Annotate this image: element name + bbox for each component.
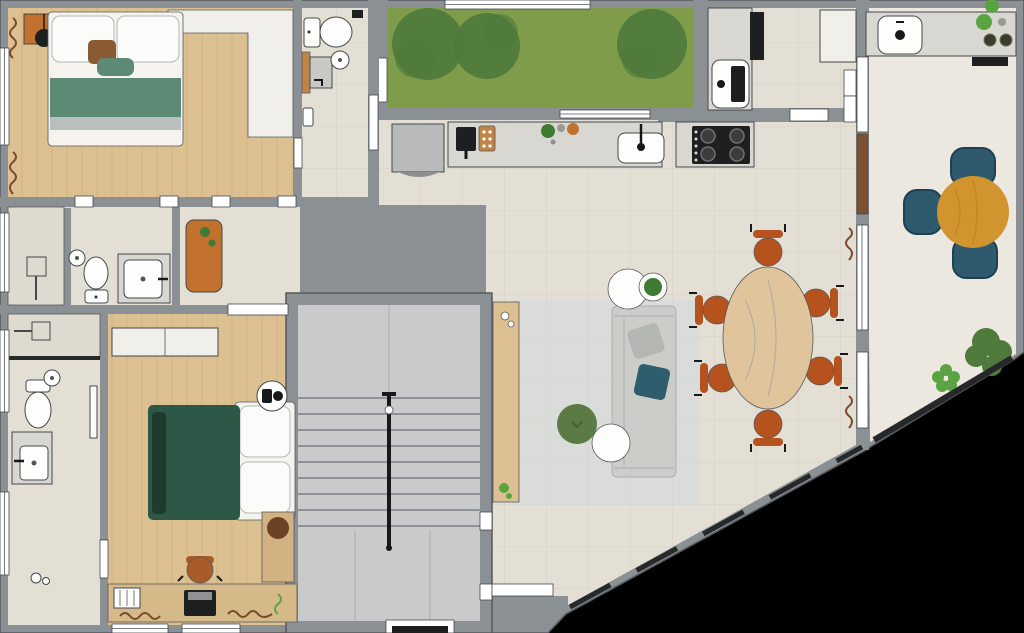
bathroom1-door[interactable] xyxy=(369,95,378,150)
burner xyxy=(701,147,715,161)
laptop-keys xyxy=(188,592,212,600)
gas-hob xyxy=(692,126,750,164)
round-table xyxy=(937,176,1009,248)
staircase xyxy=(286,293,492,633)
flush-button xyxy=(95,296,98,299)
duvet-fold xyxy=(152,412,166,514)
door-bedroom1-b[interactable] xyxy=(212,196,230,207)
faucet-base xyxy=(637,143,645,151)
door-bathroom2[interactable] xyxy=(75,196,93,207)
chair-back xyxy=(700,363,708,393)
basin-drain xyxy=(50,376,54,380)
burner xyxy=(730,147,744,161)
wicker-chair[interactable] xyxy=(904,190,942,234)
shower-area xyxy=(8,314,100,358)
vent xyxy=(352,10,363,18)
stair-door-upper[interactable] xyxy=(480,512,492,530)
basin-drain xyxy=(338,58,342,62)
planter-pot xyxy=(984,34,996,46)
toilet xyxy=(304,17,352,47)
tree-part xyxy=(482,14,518,50)
mirror-center xyxy=(75,256,79,260)
fan-hub xyxy=(273,391,283,401)
console-plant-icon xyxy=(499,483,509,493)
chair-back xyxy=(695,295,703,325)
kitchen-door[interactable] xyxy=(790,109,828,121)
wood-shelf xyxy=(302,52,310,93)
fan-motor xyxy=(262,389,272,403)
floor-plan-svg xyxy=(0,0,1024,633)
plant-on-console xyxy=(200,227,210,237)
potted-plant-icon xyxy=(644,278,662,296)
vanity xyxy=(12,432,52,484)
double-bed xyxy=(48,12,183,146)
door-hall[interactable] xyxy=(278,196,296,207)
handrail-bracket xyxy=(385,406,393,414)
sofa-pillow-teal xyxy=(633,363,671,401)
toilet-brush xyxy=(31,573,41,583)
accent-pillow-green xyxy=(97,58,134,76)
wall-living-south xyxy=(486,596,568,610)
tree-part xyxy=(395,38,435,78)
door-bedroom1-east[interactable] xyxy=(294,138,302,168)
basin-drain xyxy=(141,277,146,282)
wall-h1 xyxy=(0,197,378,207)
garden-courtyard xyxy=(378,0,708,120)
pillow xyxy=(240,462,290,513)
garden-east-wall xyxy=(693,0,708,112)
partition-window xyxy=(857,352,868,428)
double-bed xyxy=(148,402,295,520)
wall-bathroom2-east xyxy=(172,206,180,308)
chair-back xyxy=(753,230,783,238)
handrail-end xyxy=(386,545,392,551)
plant-on-console xyxy=(209,240,216,247)
ensuite-door[interactable] xyxy=(100,540,108,578)
flush-button xyxy=(308,31,311,34)
blanket-green xyxy=(50,78,181,118)
faucet-base xyxy=(717,80,725,88)
burner xyxy=(701,129,715,143)
pouf xyxy=(557,404,597,444)
bin xyxy=(303,108,313,126)
tall-cabinet xyxy=(750,12,764,60)
chair-seat xyxy=(754,410,782,438)
toilet-bowl xyxy=(320,17,352,47)
dining-chair[interactable] xyxy=(751,410,785,452)
planter-pot xyxy=(1000,34,1012,46)
shower-glass xyxy=(8,356,100,360)
terrace-partition-openings xyxy=(857,57,868,428)
hallway xyxy=(186,220,222,292)
chair-back xyxy=(830,288,838,318)
side-table xyxy=(592,424,630,462)
toilet-tank xyxy=(304,18,320,47)
pillow xyxy=(117,16,179,62)
toilet-bowl xyxy=(84,257,108,289)
pouf-brown xyxy=(267,517,289,539)
console-decor xyxy=(508,321,514,327)
living-south-door[interactable] xyxy=(492,584,553,596)
dining-chair[interactable] xyxy=(751,224,785,266)
fan-unit xyxy=(257,381,287,411)
partition-window xyxy=(857,57,868,132)
media-console xyxy=(493,302,519,502)
garden-west-window xyxy=(378,58,387,102)
vanity xyxy=(118,254,170,303)
grill-vent xyxy=(972,57,1008,66)
door-bedroom1-a[interactable] xyxy=(160,196,178,207)
cutting-board xyxy=(479,126,495,151)
tree-part xyxy=(622,42,658,78)
jar-small xyxy=(551,140,556,145)
counter-plant-icon xyxy=(976,14,992,30)
stair-door-lower[interactable] xyxy=(480,584,492,600)
fruit-bowl xyxy=(567,123,579,135)
entrance-door[interactable] xyxy=(392,626,448,633)
coffee-machine xyxy=(456,127,476,151)
door-bedroom2[interactable] xyxy=(228,304,288,315)
dining-chair[interactable] xyxy=(806,354,848,388)
console-plant-icon xyxy=(506,493,512,499)
fridge xyxy=(392,124,444,172)
sink-drainer xyxy=(731,66,745,102)
jar xyxy=(998,18,1006,26)
console-decor xyxy=(501,312,509,320)
hall-closet xyxy=(820,10,856,62)
toilet xyxy=(84,257,108,303)
blanket-gray-band xyxy=(50,117,181,130)
closet-door[interactable] xyxy=(844,70,856,96)
terrace-door[interactable] xyxy=(857,134,868,214)
floor-plan-page xyxy=(0,0,1024,633)
burner xyxy=(730,129,744,143)
faucet-base xyxy=(895,30,905,40)
closet-door[interactable] xyxy=(844,96,856,122)
chair-seat xyxy=(187,557,213,583)
herb-plant-icon xyxy=(541,124,555,138)
towel-rail xyxy=(90,386,97,438)
chair-back xyxy=(834,356,842,386)
chair-back xyxy=(753,438,783,446)
jar xyxy=(557,124,565,132)
chair-seat xyxy=(754,238,782,266)
basin-drain xyxy=(32,461,37,466)
partition-window xyxy=(857,225,868,330)
toilet-brush xyxy=(43,578,50,585)
toilet xyxy=(25,380,51,428)
pillow xyxy=(240,406,290,457)
toilet-bowl xyxy=(25,392,51,428)
wall-bedroom1-east xyxy=(293,0,302,205)
oval-dining-table xyxy=(723,267,813,409)
